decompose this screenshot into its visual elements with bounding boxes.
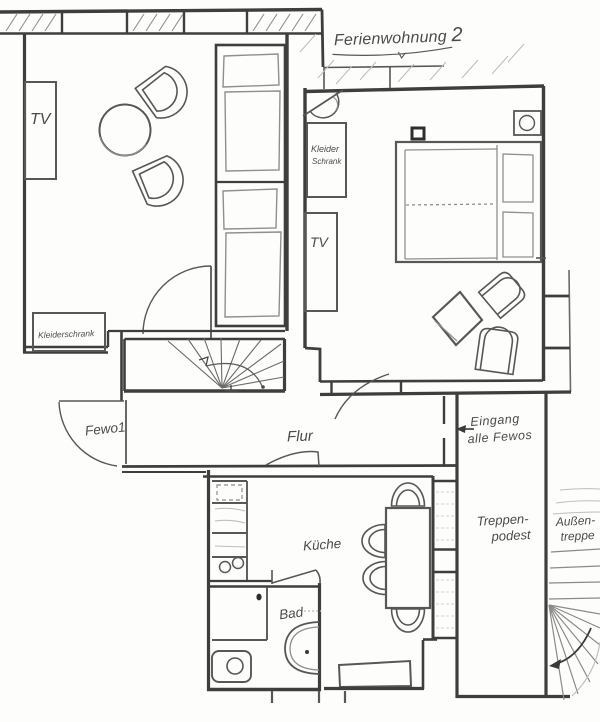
svg-text:Flur: Flur: [287, 428, 314, 446]
svg-text:Außen-: Außen-: [554, 513, 595, 529]
svg-text:TV: TV: [310, 234, 330, 250]
svg-text:Kleiderschrank: Kleiderschrank: [38, 328, 95, 340]
svg-text:Treppen-: Treppen-: [476, 511, 529, 529]
svg-text:podest: podest: [490, 527, 532, 544]
svg-text:Kleider: Kleider: [311, 144, 340, 154]
svg-text:TV: TV: [30, 111, 52, 128]
svg-text:treppe: treppe: [560, 528, 595, 544]
svg-text:Schrank: Schrank: [312, 157, 342, 166]
svg-text:Küche: Küche: [302, 536, 341, 554]
svg-text:Bad: Bad: [278, 604, 304, 622]
